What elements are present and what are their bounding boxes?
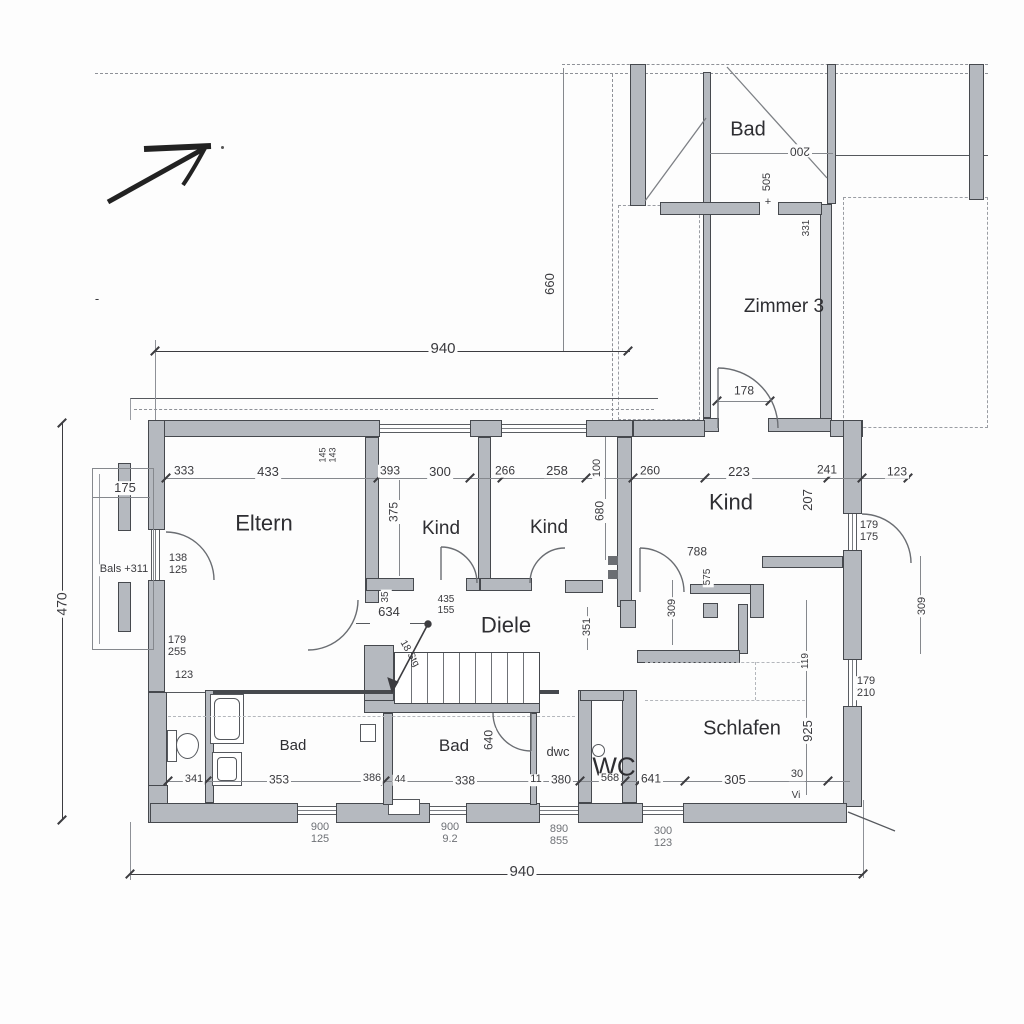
wall	[750, 584, 764, 618]
dim-300: 300	[427, 465, 453, 479]
dim-470: 470	[55, 590, 70, 617]
wall	[383, 713, 393, 805]
dim-309b: 309	[917, 595, 929, 617]
wall	[578, 803, 643, 823]
dim-155: 155	[436, 606, 457, 617]
dim-333: 333	[172, 465, 196, 478]
wall	[530, 713, 537, 805]
wall	[969, 64, 984, 200]
win2-sill: 9.2	[440, 834, 459, 846]
win4-width: 300	[652, 826, 674, 838]
wall	[762, 556, 843, 568]
wall	[660, 202, 760, 215]
room-label-kind-left: Kind	[420, 519, 462, 539]
dim-119: 119	[801, 651, 812, 671]
bad-left-top-wall	[167, 692, 205, 693]
terrace-top-line	[835, 155, 988, 156]
dim-634: 634	[376, 605, 402, 619]
win1-width: 900	[309, 822, 331, 834]
dim-351: 351	[582, 616, 594, 638]
wall	[466, 578, 480, 591]
dim-393: 393	[378, 465, 402, 478]
toilet-bowl	[176, 733, 199, 759]
dim-309a: 309	[667, 597, 679, 619]
wall	[480, 578, 532, 591]
dim-44: 44	[392, 775, 407, 786]
wall	[586, 420, 633, 437]
upper-roof-dashed	[562, 64, 988, 65]
dim-380: 380	[549, 774, 573, 787]
dim-123-right: 123	[885, 466, 909, 479]
bathtub-inner	[214, 698, 240, 740]
room-label-bad-mid: Bad	[437, 737, 471, 755]
window	[298, 806, 336, 815]
wall	[778, 202, 822, 215]
dim-35: 35	[381, 589, 392, 604]
dim-11: 11	[528, 774, 543, 786]
frame-block	[608, 556, 618, 565]
dim-568: 568	[599, 773, 621, 785]
stray-dot	[221, 146, 224, 149]
room-label-bad-upper: Bad	[728, 120, 768, 141]
lower-floor-outline-dashed	[612, 74, 613, 426]
win2-width: 900	[439, 822, 461, 834]
site-boundary-dashed	[95, 73, 988, 74]
dim-925: 925	[801, 718, 815, 744]
dim-641: 641	[639, 773, 663, 786]
room-label-kind-right: Kind	[707, 490, 755, 513]
dim-634-line	[356, 623, 370, 624]
balcony-inner-line	[99, 474, 100, 644]
pier	[703, 603, 718, 618]
room-label-kind-mid: Kind	[528, 518, 570, 538]
dim-175-line	[92, 497, 150, 498]
dim-175: 175	[112, 481, 138, 495]
wardrobe-dashed	[645, 700, 805, 701]
dim-660-line	[563, 68, 564, 351]
north-arrow-icon	[108, 146, 211, 202]
window	[643, 806, 683, 815]
annotation-vi: Vi	[790, 791, 803, 802]
dim-123-left: 123	[173, 670, 195, 682]
dim-375: 375	[388, 500, 401, 524]
dim-331: 331	[802, 218, 813, 239]
plus-mark: +	[763, 197, 773, 209]
wall	[580, 690, 624, 701]
dim-179a: 179	[166, 635, 188, 647]
dim-200: 200	[788, 145, 812, 158]
dim-179b: 179	[858, 520, 880, 532]
dim-433: 433	[255, 465, 281, 479]
balcony-label: Bals +311	[98, 564, 150, 576]
dim-125: 125	[167, 565, 189, 577]
win1-sill: 125	[309, 834, 331, 846]
dim-634-line	[410, 623, 426, 624]
wall	[768, 418, 832, 432]
wall	[470, 420, 502, 437]
room-label-bad-left: Bad	[278, 738, 309, 754]
dim-640: 640	[483, 728, 496, 752]
wall	[738, 604, 748, 654]
dim-255: 255	[166, 647, 188, 659]
wall	[466, 803, 540, 823]
window	[430, 806, 466, 815]
dim-175b: 175	[858, 532, 880, 544]
dim-178: 178	[732, 385, 756, 398]
win3-sill: 855	[548, 836, 570, 848]
room-label-zimmer3: Zimmer 3	[742, 297, 826, 317]
dim-305: 305	[722, 773, 748, 787]
dim-353: 353	[267, 774, 291, 787]
dim-788: 788	[685, 546, 709, 559]
wall	[565, 580, 603, 593]
wall	[683, 803, 847, 823]
dim-505: 505	[762, 171, 774, 193]
wardrobe-dashed-v	[755, 662, 756, 700]
dim-30: 30	[789, 769, 805, 781]
balcony-outline	[92, 468, 154, 650]
frame-block	[608, 570, 618, 579]
dim-266: 266	[493, 465, 517, 478]
dim-200-line	[710, 153, 833, 154]
void-dashed-rect	[618, 205, 700, 420]
dim-940-bottom: 940	[507, 864, 536, 880]
wall	[150, 803, 298, 823]
stray-dash: -	[93, 292, 101, 306]
floor-plan-canvas: Eltern Kind Kind Kind Diele Bad Zimmer 3…	[0, 0, 1024, 1024]
dim-143: 143	[328, 445, 337, 464]
wall	[633, 420, 705, 437]
wall	[578, 690, 592, 803]
room-label-schlafen: Schlafen	[701, 719, 783, 740]
window	[848, 514, 857, 550]
wall	[703, 418, 719, 432]
dim-386: 386	[361, 773, 383, 785]
dim-925-line	[806, 600, 807, 795]
wall	[622, 690, 637, 803]
room-label-eltern: Eltern	[233, 511, 294, 534]
room-label-diele: Diele	[479, 613, 533, 636]
wardrobe-dashed	[645, 662, 805, 663]
wall	[630, 64, 646, 206]
section-line	[168, 716, 575, 717]
wall	[843, 550, 862, 660]
dim-260: 260	[638, 465, 662, 478]
dim-341: 341	[183, 774, 205, 786]
dim-575: 575	[703, 567, 714, 588]
window	[502, 424, 586, 433]
wall	[478, 437, 491, 587]
dim-375-line	[399, 480, 400, 576]
dim-210: 210	[855, 688, 877, 700]
dim-178-line	[717, 401, 770, 402]
dim-207: 207	[801, 487, 815, 513]
wall	[843, 420, 862, 514]
corner-break-line	[848, 812, 895, 831]
dim-179c: 179	[855, 676, 877, 688]
window	[380, 424, 470, 433]
wall	[703, 72, 711, 418]
dim-line-940-bottom	[130, 874, 864, 875]
dim-435: 435	[436, 595, 457, 606]
eaves-dashed-center	[134, 409, 654, 410]
win4-sill: 123	[652, 838, 674, 850]
win3-width: 890	[548, 824, 570, 836]
dim-ext	[863, 800, 864, 878]
terrace-dashed-rect	[843, 197, 988, 428]
annotation-dwc: dwc	[544, 745, 571, 759]
window	[540, 806, 578, 815]
wall	[364, 645, 394, 703]
dim-338: 338	[453, 775, 477, 788]
sink-inner	[217, 757, 237, 781]
dim-940-top: 940	[428, 341, 457, 357]
dim-line-470	[62, 423, 63, 820]
wall	[827, 64, 836, 204]
dim-660: 660	[543, 271, 557, 297]
dim-line-940-top	[155, 351, 630, 352]
dim-100: 100	[592, 457, 604, 479]
radiator	[360, 724, 376, 742]
wall	[690, 584, 754, 594]
dim-223: 223	[726, 465, 752, 479]
wall	[620, 600, 636, 628]
wall	[843, 706, 862, 807]
dim-680: 680	[594, 499, 607, 523]
wall	[148, 420, 380, 437]
dim-138: 138	[167, 553, 189, 565]
dim-241: 241	[815, 464, 839, 477]
dim-258: 258	[544, 464, 570, 478]
wall	[617, 437, 632, 607]
